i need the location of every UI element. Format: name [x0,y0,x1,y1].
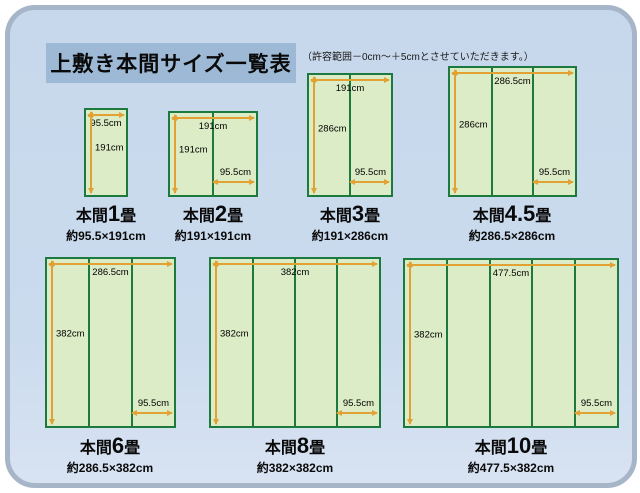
diagram-caption-2jo: 本間2畳 約191×191cm [163,202,263,243]
left-height-arrow [51,261,53,424]
diagram-caption-3jo: 本間3畳 約191×286cm [300,202,400,243]
diagram-caption-1jo: 本間1畳 約95.5×191cm [56,202,156,243]
top-width-label: 95.5cm [86,118,126,129]
tatami-diagram-3jo: 191cm 286cm 95.5cm [307,73,393,197]
top-width-arrow [407,264,615,266]
left-height-label: 382cm [220,329,249,340]
diagram-size: 約286.5×286cm [452,229,572,243]
top-width-label: 191cm [309,83,391,94]
top-width-label: 191cm [170,121,256,132]
left-height-label: 191cm [95,143,124,154]
mat-width-arrow [533,181,573,183]
top-width-label: 382cm [211,267,379,278]
diagram-caption-4_5jo: 本間4.5畳 約286.5×286cm [452,202,572,243]
mat-divider [446,260,448,426]
mat-divider [131,259,133,426]
left-height-label: 382cm [56,329,85,340]
tolerance-note: （許容範囲－0cm～＋5cmとさせていただきます。） [302,48,534,63]
diagram-size: 約286.5×382cm [50,461,170,475]
tatami-diagram-10jo: 477.5cm 382cm 95.5cm [403,258,619,428]
mat-width-label: 95.5cm [581,398,612,409]
left-height-arrow [174,115,176,193]
diagram-size: 約191×286cm [300,229,400,243]
mat-divider [294,259,296,426]
mat-divider [574,260,576,426]
mat-divider [252,259,254,426]
left-height-arrow [215,261,217,424]
top-width-arrow [452,72,573,74]
diagram-size: 約382×382cm [235,461,355,475]
diagram-caption-6jo: 本間6畳 約286.5×382cm [50,434,170,475]
left-height-arrow [90,112,92,193]
diagram-caption-8jo: 本間8畳 約382×382cm [235,434,355,475]
top-width-label: 286.5cm [450,76,575,87]
left-height-label: 191cm [179,144,208,155]
left-height-label: 382cm [414,329,443,340]
mat-divider [532,68,534,195]
mat-divider [336,259,338,426]
mat-width-arrow [337,412,377,414]
top-width-arrow [172,117,254,119]
page-title-text: 上敷き本間サイズ一覧表 [50,48,291,78]
diagram-size: 約191×191cm [163,229,263,243]
mat-width-label: 95.5cm [355,167,386,178]
top-width-arrow [311,79,389,81]
diagram-name: 本間8畳 [235,434,355,461]
left-height-label: 286cm [459,120,488,131]
diagram-name: 本間4.5畳 [452,202,572,229]
top-width-arrow [49,263,172,265]
tatami-diagram-2jo: 191cm 191cm 95.5cm [168,111,258,197]
top-width-label: 286.5cm [47,267,174,278]
left-height-arrow [313,77,315,193]
diagram-name: 本間3畳 [300,202,400,229]
tatami-diagram-4_5jo: 286.5cm 286cm 95.5cm [448,66,577,197]
mat-width-label: 95.5cm [539,167,570,178]
mat-divider [531,260,533,426]
diagram-name: 本間10畳 [451,434,571,461]
diagram-name: 本間2畳 [163,202,263,229]
mat-width-label: 95.5cm [138,398,169,409]
mat-width-arrow [575,412,615,414]
mat-width-arrow [132,412,172,414]
diagram-caption-10jo: 本間10畳 約477.5×382cm [451,434,571,475]
mat-divider [88,259,90,426]
top-width-label: 477.5cm [405,268,617,279]
diagram-size: 約95.5×191cm [56,229,156,243]
tatami-diagram-8jo: 382cm 382cm 95.5cm [209,257,381,428]
diagram-size: 約477.5×382cm [451,461,571,475]
diagram-name: 本間1畳 [56,202,156,229]
tatami-diagram-6jo: 286.5cm 382cm 95.5cm [45,257,176,428]
page-title: 上敷き本間サイズ一覧表 [46,43,296,83]
rounded-panel: 上敷き本間サイズ一覧表 （許容範囲－0cm～＋5cmとさせていただきます。） 9… [5,5,637,488]
left-height-arrow [409,262,411,424]
mat-width-arrow [213,181,254,183]
mat-width-label: 95.5cm [343,398,374,409]
tatami-diagram-1jo: 95.5cm 191cm [84,108,128,197]
mat-divider [491,68,493,195]
mat-width-arrow [350,181,389,183]
mat-width-label: 95.5cm [220,167,251,178]
left-height-label: 286cm [318,124,347,135]
left-height-arrow [454,70,456,193]
mat-divider [489,260,491,426]
top-width-arrow [213,263,377,265]
diagram-name: 本間6畳 [50,434,170,461]
